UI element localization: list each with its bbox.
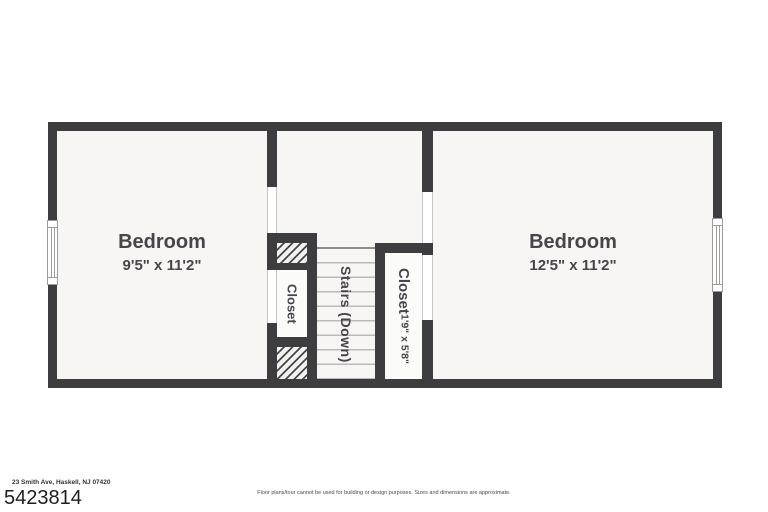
closet-right-label-group: Closet 1'9" x 5'8" bbox=[395, 268, 412, 364]
window-sill bbox=[48, 277, 57, 278]
stairs-treads: Stairs (Down) bbox=[317, 247, 375, 379]
bedroom-right-label: Bedroom bbox=[529, 231, 617, 254]
window-pane bbox=[716, 226, 720, 284]
bedroom-right-dimensions: 12'5" x 11'2" bbox=[529, 257, 616, 274]
closet-left: Closet bbox=[277, 270, 307, 337]
closet-right: Closet 1'9" x 5'8" bbox=[385, 253, 422, 379]
floor-plan-page: Closet Stairs (Down) Closet 1'9" x 5'8" … bbox=[0, 0, 768, 512]
bedroom-left-dimensions: 9'5" x 11'2" bbox=[123, 257, 202, 274]
window-sill bbox=[713, 284, 722, 285]
property-address: 23 Smith Ave, Haskell, NJ 07420 bbox=[12, 479, 111, 486]
divider-right-wall-bottom bbox=[422, 320, 433, 379]
right-closet-door-opening bbox=[422, 255, 433, 320]
closet-right-dimensions: 1'9" x 5'8" bbox=[399, 314, 411, 364]
right-bedroom-door-opening bbox=[422, 192, 433, 243]
right-closet-left-wall bbox=[375, 243, 385, 379]
divider-left-wall-bottom bbox=[267, 323, 277, 379]
divider-left-wall-top bbox=[267, 131, 277, 187]
closet-right-label: Closet bbox=[395, 268, 412, 314]
outer-wall-bottom bbox=[48, 379, 722, 388]
stairs-label: Stairs (Down) bbox=[338, 266, 354, 363]
bedroom-left-label: Bedroom bbox=[118, 231, 206, 254]
hatch-area-upper bbox=[277, 243, 307, 263]
hatch-area-lower bbox=[277, 347, 307, 379]
divider-right-wall-mid bbox=[422, 243, 433, 255]
outer-wall-top bbox=[48, 122, 722, 131]
left-closet-right-wall bbox=[307, 233, 317, 379]
left-closet-door-opening bbox=[267, 270, 277, 323]
window-right bbox=[712, 218, 723, 292]
bedroom-left-label-block: Bedroom 9'5" x 11'2" bbox=[57, 222, 267, 282]
left-bedroom-door-opening bbox=[267, 187, 277, 233]
window-pane bbox=[51, 228, 55, 277]
bedroom-right-label-block: Bedroom 12'5" x 11'2" bbox=[433, 222, 713, 282]
divider-right-wall-top bbox=[422, 131, 433, 192]
closet-left-label: Closet bbox=[285, 284, 300, 324]
disclaimer-text: Floor plans/tour cannot be used for buil… bbox=[0, 490, 768, 496]
